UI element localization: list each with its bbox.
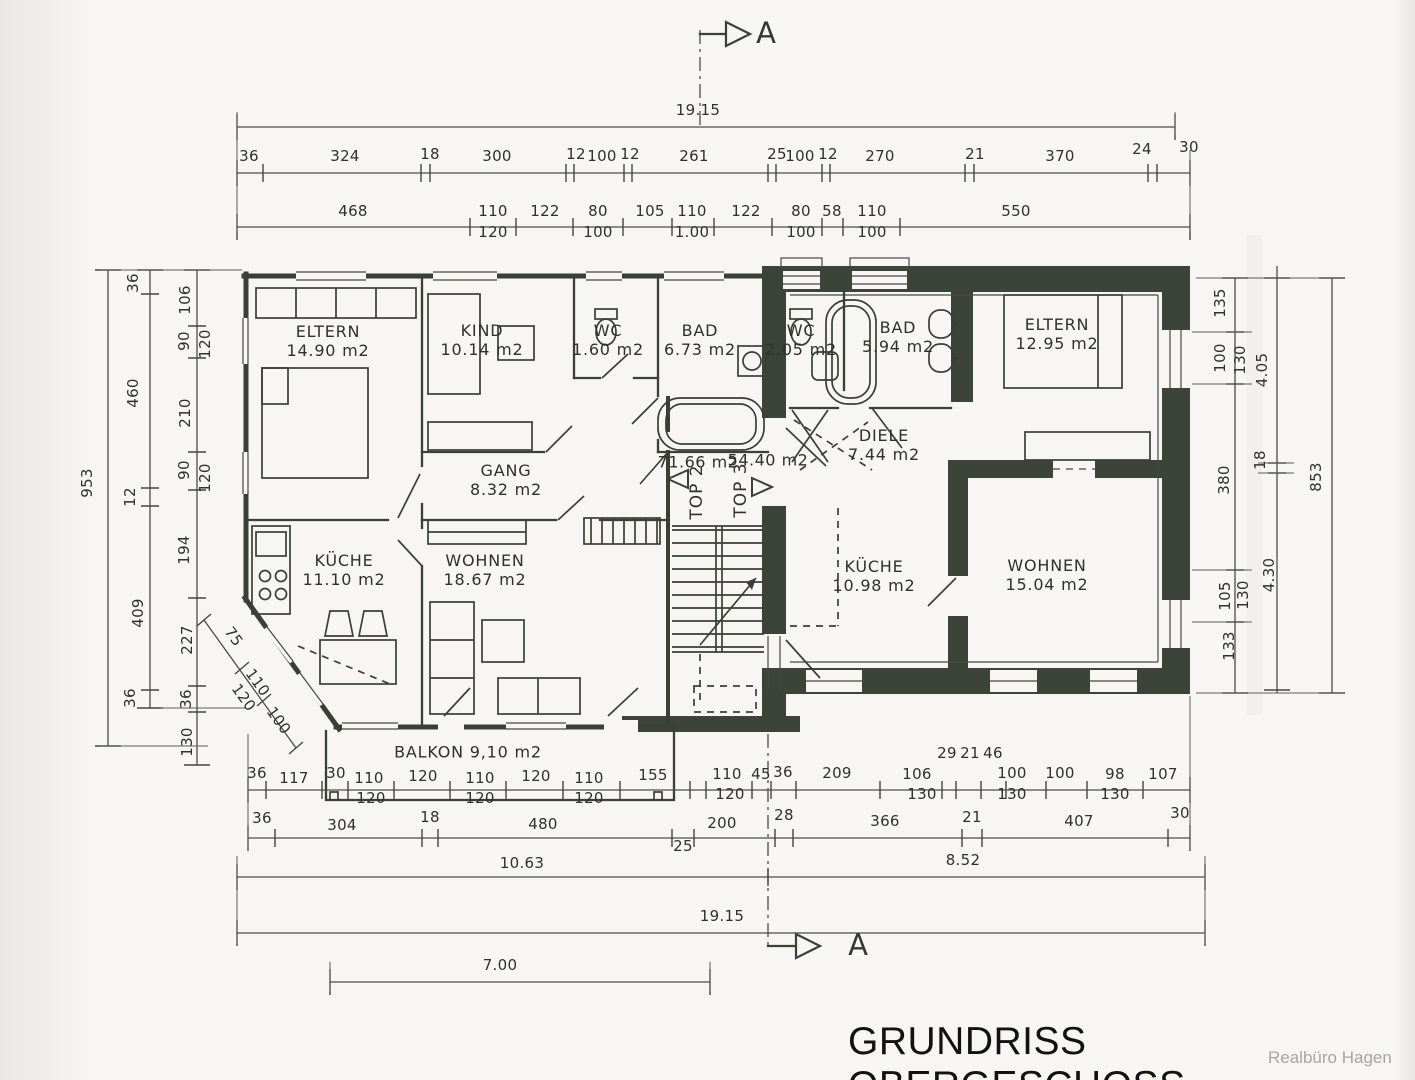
section-arrow-icon [796,934,820,958]
dimension-label: 45 [751,766,771,784]
dimension-label: 155 [638,767,668,785]
room-label: ELTERN 12.95 m2 [1015,316,1098,354]
dimension-label: 200 [707,815,737,833]
dimension-label: 21 [960,745,980,763]
dimension-label: 110 [478,203,508,221]
dimension-label: 106 [902,766,932,784]
room-label: BALKON 9,10 m2 [394,744,542,763]
dimension-label: 21 [962,809,982,827]
dimension-label: 300 [482,148,512,166]
dimension-label: 130 [907,786,937,804]
dimension-label: 120 [356,790,386,808]
dimension-label: 8.52 [946,852,981,870]
dimension-label: 120 [408,768,438,786]
dimension-label: 18 [1252,450,1270,470]
unit-direction-arrow-icon [668,470,688,488]
dimension-label: 107 [1148,766,1178,784]
dimension-label: 90 [176,460,194,480]
dimension-label: 110 [354,770,384,788]
dimension-label: 135 [1212,288,1230,318]
dimension-label: 100 [785,148,815,166]
dimension-label: 98 [1105,766,1125,784]
dimension-label: 30 [326,765,346,783]
dimension-label: 227 [179,625,197,655]
dimension-label: 370 [1045,148,1075,166]
dimension-label: 1.00 [675,224,710,242]
dimension-label: 19.15 [700,908,744,926]
dimension-label: 460 [125,378,143,408]
dimension-label: 36 [252,810,272,828]
room-label: BAD 5.94 m2 [862,319,934,357]
room-label: KIND 10.14 m2 [440,322,523,360]
dimension-label: 28 [774,807,794,825]
dimension-label: 105 [635,203,665,221]
dimension-label: 19.15 [676,102,720,120]
dimension-label: 36 [239,148,259,166]
dimension-label: 550 [1001,203,1031,221]
dimension-label: 261 [679,148,709,166]
dimension-label: 853 [1308,462,1326,492]
room-label: KÜCHE 11.10 m2 [302,552,385,590]
dimension-label: 270 [865,148,895,166]
dimension-label: 25 [767,146,787,164]
dimension-label: 194 [176,535,194,565]
dimension-label: 120 [465,790,495,808]
watermark: Realbüro Hagen [1268,1048,1392,1068]
room-label: WOHNEN 18.67 m2 [443,552,526,590]
dimension-label: 110 [574,770,604,788]
unit-arrows [668,470,772,496]
dimension-label: 120 [197,329,215,359]
dimension-label: 36 [247,765,267,783]
dimension-label: 100 [857,224,887,242]
dimension-label: 21 [965,146,985,164]
dimension-label: 120 [715,786,745,804]
dimension-label: 100 [1212,343,1230,373]
room-label: GANG 8.32 m2 [470,462,542,500]
dimension-label: 110 [465,770,495,788]
section-marker-label: A [848,928,868,962]
section-arrow-icon [726,22,750,46]
dimension-label: 133 [1221,631,1239,661]
dimension-label: 130 [1235,580,1253,610]
stairs [672,526,764,712]
floor-plan-page: 19.1536324183001210012261251001227021370… [0,0,1415,1080]
dimension-label: 409 [130,598,148,628]
dimension-label: 210 [177,398,195,428]
dimension-label: 4.30 [1261,558,1279,593]
dimension-label: 468 [338,203,368,221]
dimension-label: 122 [530,203,560,221]
dimension-label: 80 [791,203,811,221]
wall-inner-lines [790,295,1158,662]
dimension-label: 130 [997,786,1027,804]
dimension-label: 90 [176,331,194,351]
dimension-label: 324 [330,148,360,166]
dimension-label: 106 [177,285,195,315]
dimension-label: 304 [327,817,357,835]
dimension-label: 58 [822,203,842,221]
dimension-label: 117 [279,770,309,788]
dimension-label: 18 [420,809,440,827]
dimension-label: 407 [1064,813,1094,831]
dimension-label: 30 [1170,805,1190,823]
dimension-label: 10.63 [500,855,544,873]
unit-label: TOP 3 [731,462,751,517]
dimension-label: 110 [677,203,707,221]
dimension-label: 120 [521,768,551,786]
dimension-label: 24 [1132,141,1152,159]
dimension-label: 25 [673,838,693,856]
dimension-label: 12 [620,146,640,164]
dimension-label: 4.05 [1254,353,1272,388]
dimension-label: 30 [1179,139,1199,157]
dimension-label: 105 [1217,581,1235,611]
dimension-label: 110 [712,766,742,784]
dimension-label: 120 [478,224,508,242]
room-label: WOHNEN 15.04 m2 [1005,557,1088,595]
dimension-label: 953 [79,468,97,498]
dimension-label: 7.00 [483,957,518,975]
dimension-label: 100 [1045,765,1075,783]
dimension-label: 36 [125,273,143,293]
dimension-label: 480 [528,816,558,834]
dimension-label: 100 [587,148,617,166]
room-label: KÜCHE 10.98 m2 [832,558,915,596]
dimension-label: 12 [122,487,140,507]
unit-label: TOP 2 [687,464,707,519]
dimension-label: 12 [566,146,586,164]
dimension-label: 80 [588,203,608,221]
dimension-label: 100 [583,224,613,242]
dimension-label: 100 [786,224,816,242]
room-label: WC 1.60 m2 [572,322,644,360]
dimension-label: 380 [1216,465,1234,495]
dimension-label: 120 [574,790,604,808]
dimension-label: 130 [179,727,197,757]
dimension-label: 46 [983,745,1003,763]
room-label: DIELE 7.44 m2 [848,427,920,465]
dimension-label: 110 [857,203,887,221]
dimension-label: 122 [731,203,761,221]
dimension-label: 18 [420,146,440,164]
room-label: BAD 6.73 m2 [664,322,736,360]
dimension-label: 36 [178,689,196,709]
dimension-label: 130 [1100,786,1130,804]
dimension-label: 130 [1232,345,1250,375]
dimension-label: 366 [870,813,900,831]
dimension-label: 36 [122,688,140,708]
section-marker-label: A [756,16,776,50]
dimension-label: 100 [997,765,1027,783]
dimension-label: 36 [773,764,793,782]
room-label: WC 2.05 m2 [765,322,837,360]
dimension-label: 12 [818,146,838,164]
dimension-label: 29 [937,745,957,763]
room-label: ELTERN 14.90 m2 [286,323,369,361]
dimension-label: 120 [197,463,215,493]
unit-direction-arrow-icon [752,478,772,496]
dimension-label: 209 [822,765,852,783]
